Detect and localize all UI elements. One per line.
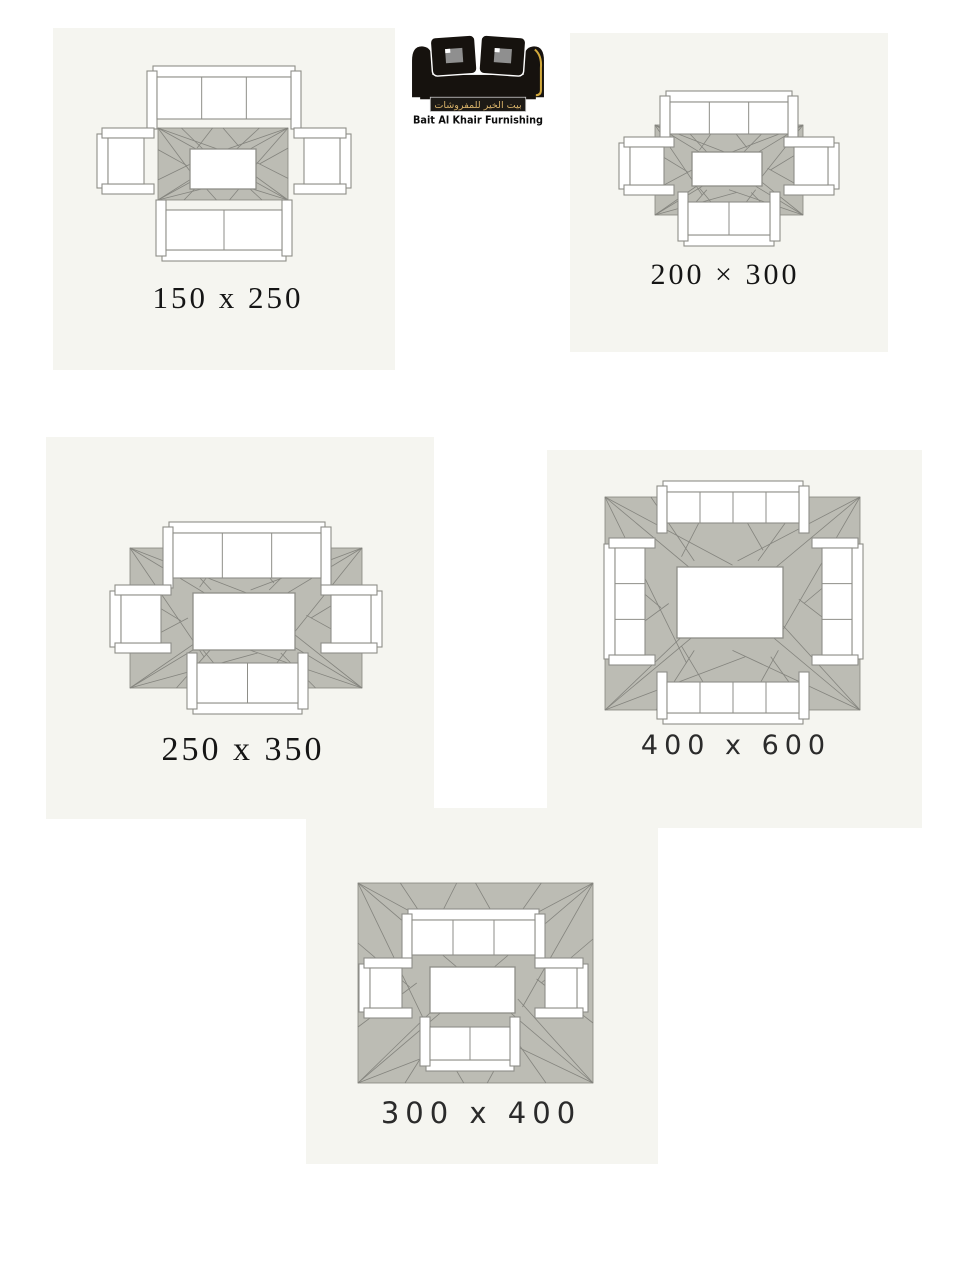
sofa-logo-icon: بيت الخير للمفروشات Bait Al Khair Furnis… (410, 34, 546, 128)
sofa (156, 200, 292, 261)
coffee-table (677, 567, 783, 638)
size-panel-250x350: 250 x 350 (46, 437, 434, 819)
armchair (294, 128, 351, 194)
sofa (163, 522, 331, 588)
armchair (97, 128, 154, 194)
rug-size-guide-flyer: { "page": {"background": "#ffffff", "wid… (0, 0, 960, 1280)
size-panel-400x600: 400 x 600 (547, 450, 922, 828)
sofa (147, 66, 301, 129)
coffee-table (430, 967, 515, 1013)
brand-logo: بيت الخير للمفروشات Bait Al Khair Furnis… (410, 34, 546, 128)
coffee-table (190, 149, 256, 189)
rug-size-label: 300 x 400 (381, 1099, 581, 1128)
brand-name-english: Bait Al Khair Furnishing (413, 114, 543, 127)
logo-pillow-right-icon (479, 35, 526, 77)
rug-size-label: 250 x 350 (162, 733, 325, 767)
rug-size-label: 200 × 300 (651, 260, 800, 290)
room-layout-diagram (547, 450, 922, 828)
size-panel-300x400: 300 x 400 (306, 808, 658, 1164)
logo-pillow-left-icon (430, 35, 477, 77)
room-layout-diagram (570, 33, 888, 352)
size-panel-150x250: 150 x 250 (53, 28, 395, 370)
brand-name-arabic: بيت الخير للمفروشات (434, 101, 521, 111)
logo-sofa-seat (420, 75, 536, 99)
coffee-table (193, 593, 295, 650)
room-layout-diagram (53, 28, 395, 370)
coffee-table (692, 152, 762, 186)
size-panel-200x300: 200 × 300 (570, 33, 888, 352)
rug-size-label: 150 x 250 (153, 282, 304, 313)
rug-size-label: 400 x 600 (641, 732, 831, 759)
